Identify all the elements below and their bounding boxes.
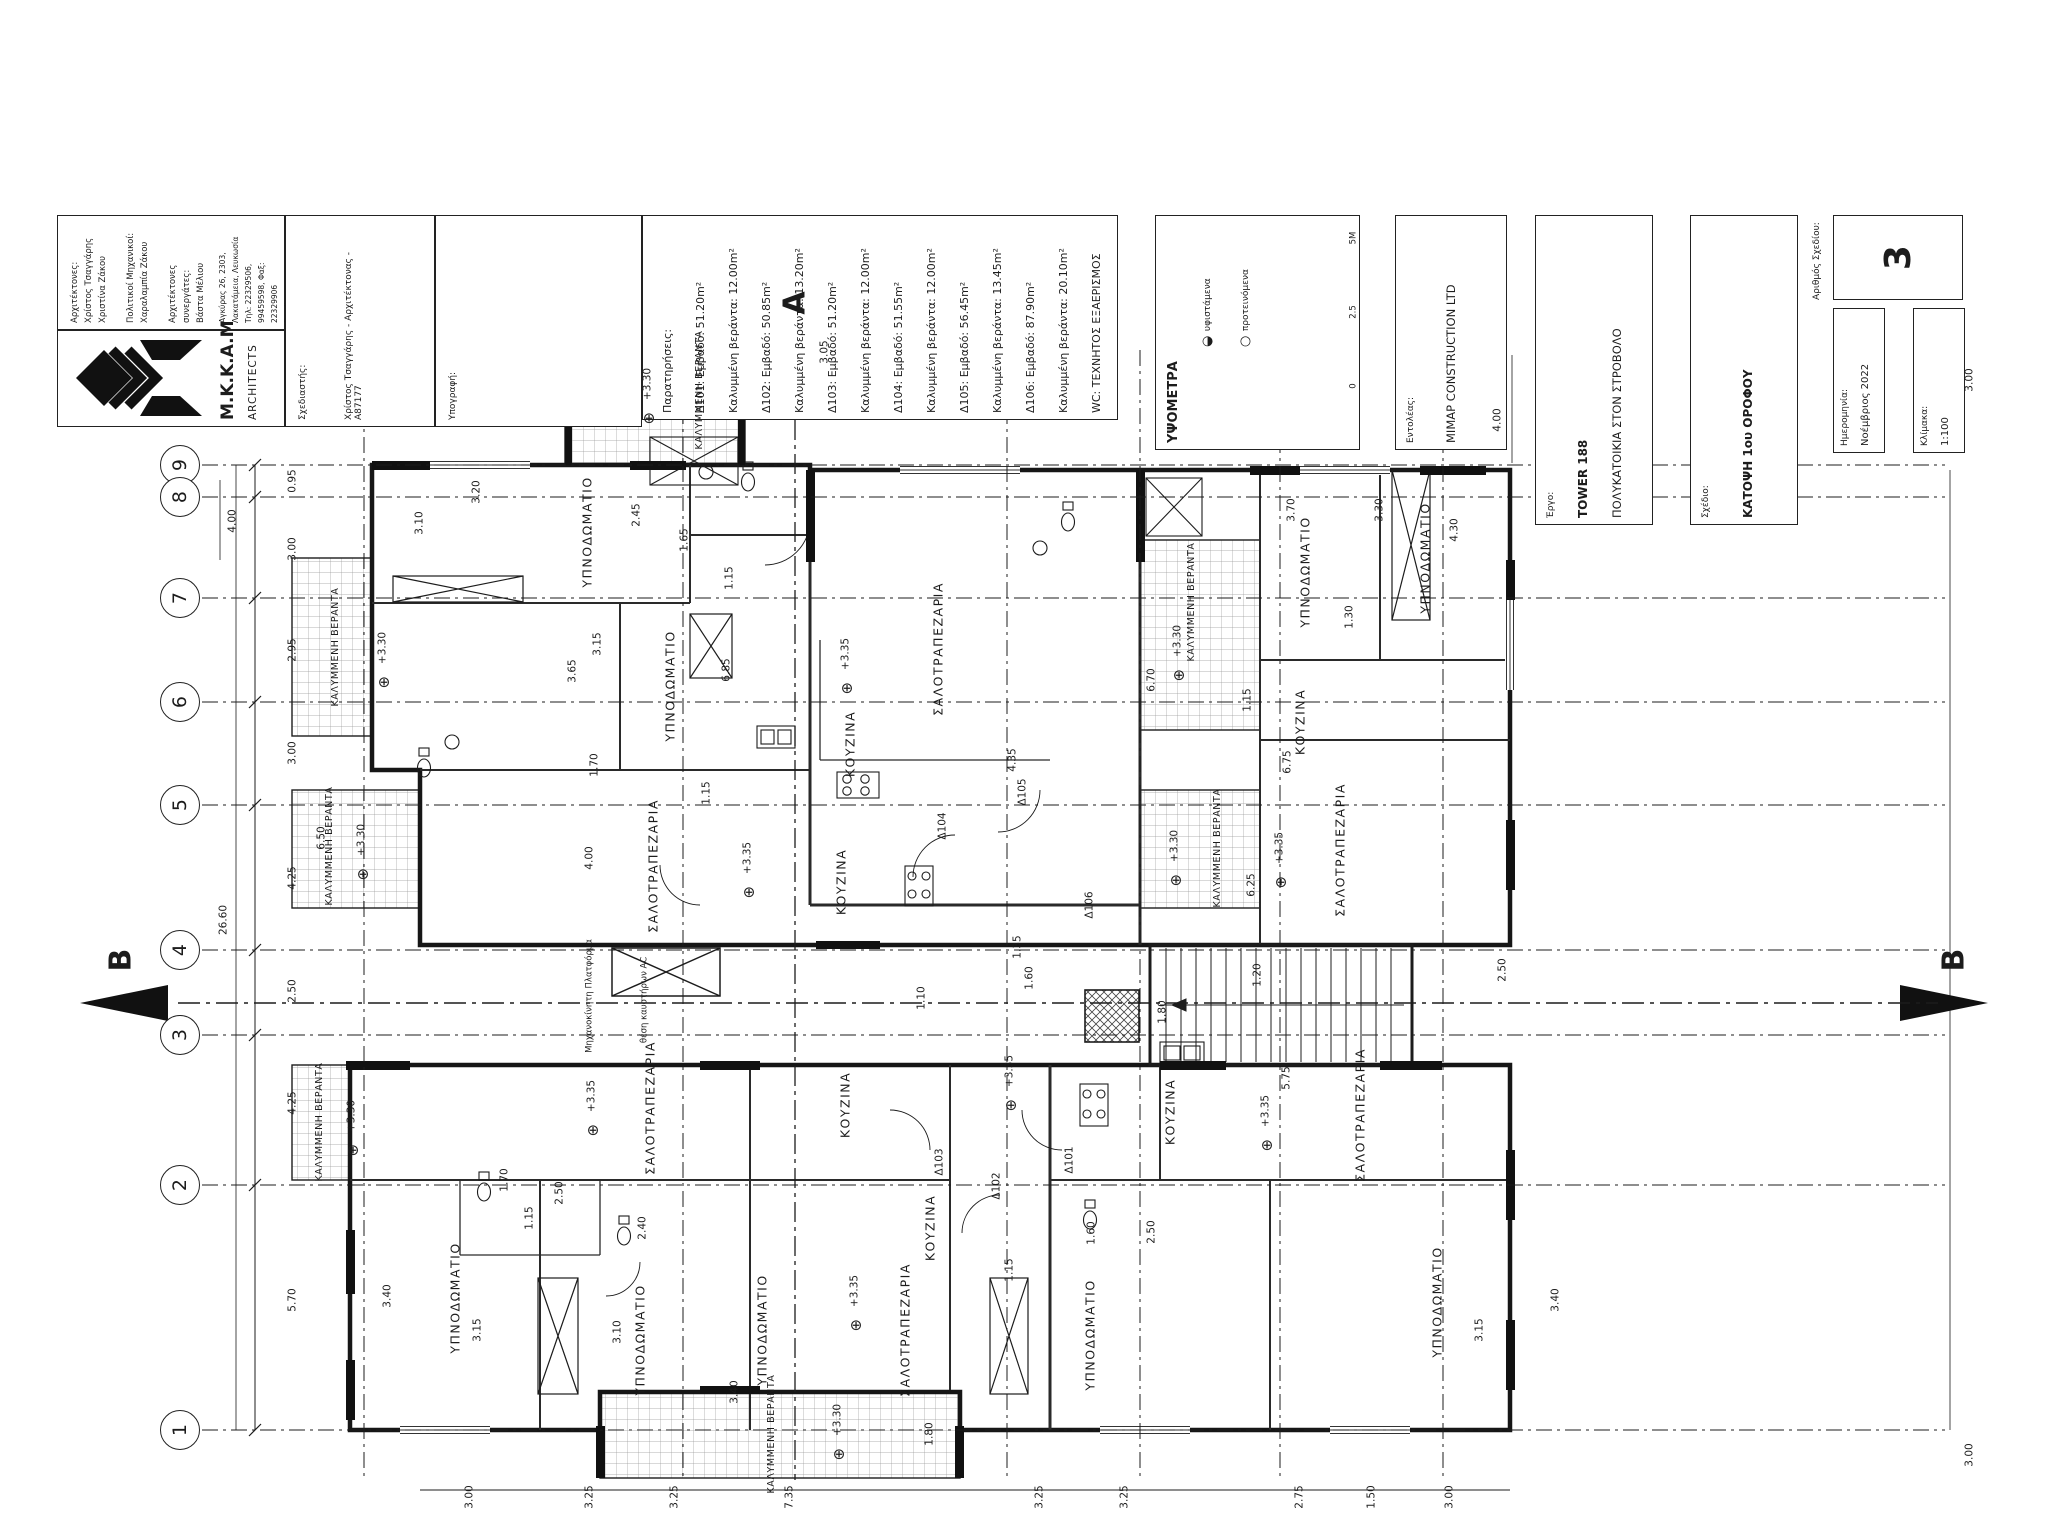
section-a-letter: A — [779, 291, 811, 314]
dimension-text: 1.80 — [924, 1422, 935, 1445]
level-marker-icon: ⊕ — [347, 1141, 360, 1159]
bottom-dimension: 2.75 — [1294, 1485, 1305, 1508]
level-text: +3.35 — [742, 842, 753, 874]
bottom-dimension: 3.25 — [1034, 1485, 1045, 1508]
left-dimension: 2.95 — [287, 638, 298, 661]
room-label: ΥΠΝΟΔΩΜΑΤΙΟ — [663, 630, 676, 741]
scalebar-label: 2.5 — [1350, 305, 1359, 319]
dimension-text: 1.60 — [1024, 966, 1035, 989]
plan-annotations: ΥΠΝΟΔΩΜΑΤΙΟΥΠΝΟΔΩΜΑΤΙΟΣΑΛΟΤΡΑΠΕΖΑΡΙΑΚΟΥΖ… — [0, 0, 2048, 1536]
section-b-letter: B — [105, 949, 137, 972]
room-label: ΚΟΥΖΙΝΑ — [1163, 1079, 1176, 1145]
dimension-text: 5.75 — [1281, 1066, 1292, 1089]
grid-bubble-1: 1 — [160, 1410, 200, 1450]
dimension-text: 4.35 — [1007, 748, 1018, 771]
dimension-text: 1.15 — [1004, 1258, 1015, 1281]
right-dimension: 3.00 — [1964, 368, 1975, 391]
apartment-tag: Δ101 — [1064, 1146, 1075, 1173]
level-text: +3.30 — [832, 1404, 843, 1436]
left-dimension: 4.25 — [287, 866, 298, 889]
left-dimension: 4.25 — [287, 1091, 298, 1114]
room-label: ΣΑΛΟΤΡΑΠΕΖΑΡΙΑ — [1353, 1048, 1366, 1182]
level-marker-icon: ⊕ — [378, 673, 391, 691]
floor-plan-sheet: Αρχιτέκτονες: Χρίστος Τσαγγάρης Χριστίνα… — [0, 0, 2048, 1536]
dimension-text: 3.15 — [1474, 1318, 1485, 1341]
dimension-text: 1.65 — [679, 528, 690, 551]
grid-bubble-7: 7 — [160, 578, 200, 618]
apartment-tag: Δ103 — [934, 1148, 945, 1175]
dimension-text: 2.45 — [631, 503, 642, 526]
room-label: ΚΟΥΖΙΝΑ — [843, 711, 856, 777]
room-label: ΣΑΛΟΤΡΑΠΕΖΑΡΙΑ — [1333, 783, 1346, 917]
dimension-text: 1.35 — [1012, 935, 1023, 958]
level-marker-icon: ⊕ — [850, 1316, 863, 1334]
bottom-dimension: 3.25 — [669, 1485, 680, 1508]
level-text: +3.30 — [1169, 830, 1180, 862]
room-label: ΥΠΝΟΔΩΜΑΤΙΟ — [1083, 1279, 1096, 1390]
bottom-dimension: 3.25 — [584, 1485, 595, 1508]
dimension-text: 6.75 — [1282, 750, 1293, 773]
dimension-text: 4.00 — [227, 509, 238, 532]
overall-dimension: 26.60 — [218, 905, 229, 935]
level-text: +3.35 — [1260, 1095, 1271, 1127]
level-marker-icon: ⊕ — [841, 679, 854, 697]
level-marker-icon: ⊕ — [743, 883, 756, 901]
dimension-text: 1.15 — [1242, 688, 1253, 711]
dimension-text: 6.25 — [1246, 873, 1257, 896]
room-label: ΚΟΥΖΙΝΑ — [834, 849, 847, 915]
dimension-text: 3.10 — [612, 1320, 623, 1343]
bottom-dimension: 7.35 — [784, 1485, 795, 1508]
dimension-text: 1.20 — [1252, 963, 1263, 986]
room-label: ΣΑΛΟΤΡΑΠΕΖΑΡΙΑ — [898, 1263, 911, 1397]
room-label: ΥΠΝΟΔΩΜΑΤΙΟ — [1430, 1246, 1443, 1357]
room-label: ΥΠΝΟΔΩΜΑΤΙΟ — [580, 476, 593, 587]
veranda-label: ΚΑΛΥΜΜΕΝΗ ΒΕΡΑΝΤΑ — [331, 587, 341, 706]
section-b-letter: B — [1938, 949, 1970, 972]
level-text: +3.30 — [642, 368, 653, 400]
dimension-text: 3.40 — [729, 1380, 740, 1403]
dimension-text: 1.70 — [589, 753, 600, 776]
grid-bubble-8: 8 — [160, 477, 200, 517]
room-label: ΣΑΛΟΤΡΑΠΕΖΑΡΙΑ — [643, 1041, 656, 1175]
room-label: ΚΟΥΖΙΝΑ — [838, 1072, 851, 1138]
level-text: +3.35 — [840, 638, 851, 670]
apartment-tag: Δ102 — [991, 1172, 1002, 1199]
level-text: +3.35 — [849, 1275, 860, 1307]
dimension-text: 6.70 — [1146, 668, 1157, 691]
grid-bubble-5: 5 — [160, 785, 200, 825]
bottom-dimension: 1.50 — [1366, 1485, 1377, 1508]
scalebar-label: 5M — [1350, 232, 1359, 245]
level-text: +3.30 — [377, 632, 388, 664]
apartment-tag: Δ106 — [1084, 891, 1095, 918]
room-label: ΣΑΛΟΤΡΑΠΕΖΑΡΙΑ — [646, 799, 659, 933]
veranda-label: ΚΑΛΥΜΜΕΝΗ ΒΕΡΑΝΤΑ — [767, 1374, 777, 1493]
dimension-text: 3.20 — [471, 480, 482, 503]
grid-bubble-3: 3 — [160, 1015, 200, 1055]
room-label: ΚΟΥΖΙΝΑ — [1293, 689, 1306, 755]
level-text: +3.30 — [1172, 625, 1183, 657]
veranda-label: ΚΑΛΥΜΜΕΝΗ ΒΕΡΑΝΤΑ — [1213, 788, 1223, 907]
right-dimension: 3.00 — [1964, 1443, 1975, 1466]
veranda-label: ΚΑΛΥΜΜΕΝΗ ΒΕΡΑΝΤΑ — [695, 330, 705, 449]
level-marker-icon: ⊕ — [1005, 1096, 1018, 1114]
dimension-text: 6.85 — [721, 658, 732, 681]
dimension-text: 4.00 — [584, 846, 595, 869]
scalebar-label: 0 — [1350, 383, 1359, 388]
level-marker-icon: ⊕ — [1261, 1136, 1274, 1154]
dimension-text: 3.40 — [382, 1284, 393, 1307]
left-dimension: 3.00 — [287, 741, 298, 764]
veranda-label: ΚΑΛΥΜΜΕΝΗ ΒΕΡΑΝΤΑ — [315, 1062, 325, 1181]
dimension-text: 1.60 — [1086, 1221, 1097, 1244]
dimension-text: 4.30 — [1449, 518, 1460, 541]
room-label: ΣΑΛΟΤΡΑΠΕΖΑΡΙΑ — [931, 582, 944, 716]
dimension-text: 6.50 — [316, 826, 327, 849]
bottom-dimension: 3.00 — [464, 1485, 475, 1508]
room-label: ΥΠΝΟΔΩΜΑΤΙΟ — [755, 1274, 768, 1385]
dimension-text: 3.40 — [1550, 1288, 1561, 1311]
level-marker-icon: ⊕ — [643, 409, 656, 427]
dimension-text: 3.65 — [567, 659, 578, 682]
room-label: ΥΠΝΟΔΩΜΑΤΙΟ — [1418, 502, 1431, 613]
grid-bubble-4: 4 — [160, 930, 200, 970]
grid-bubble-6: 6 — [160, 682, 200, 722]
level-text: +3.30 — [356, 824, 367, 856]
level-text: +3.35 — [1274, 832, 1285, 864]
bottom-dimension: 3.25 — [1119, 1485, 1130, 1508]
level-marker-icon: ⊕ — [357, 865, 370, 883]
level-marker-icon: ⊕ — [833, 1445, 846, 1463]
dimension-text: 1.80 — [1157, 1000, 1168, 1023]
dimension-text: 1.30 — [1344, 605, 1355, 628]
room-label: ΥΠΝΟΔΩΜΑΤΙΟ — [633, 1284, 646, 1395]
dimension-text: 3.70 — [1286, 498, 1297, 521]
level-marker-icon: ⊕ — [1275, 873, 1288, 891]
room-label: ΥΠΝΟΔΩΜΑΤΙΟ — [1298, 516, 1311, 627]
dimension-text: 2.50 — [1497, 958, 1508, 981]
left-dimension: 2.50 — [287, 979, 298, 1002]
dimension-text: 2.50 — [1146, 1220, 1157, 1243]
left-dimension: 0.95 — [287, 469, 298, 492]
dimension-text: 4.00 — [1492, 408, 1503, 431]
grid-bubble-2: 2 — [160, 1165, 200, 1205]
level-text: +3.30 — [346, 1100, 357, 1132]
level-marker-icon: ⊕ — [587, 1121, 600, 1139]
dimension-text: 3.30 — [1374, 498, 1385, 521]
note-text: θέση καυστήρων AC — [641, 957, 650, 1043]
apartment-tag: Δ105 — [1017, 778, 1028, 805]
room-label: ΚΟΥΖΙΝΑ — [923, 1195, 936, 1261]
level-text: +3.35 — [586, 1080, 597, 1112]
level-text: +3.35 — [1004, 1055, 1015, 1087]
apartment-tag: Δ104 — [937, 812, 948, 839]
left-dimension: 5.70 — [287, 1288, 298, 1311]
dimension-text: 1.10 — [916, 986, 927, 1009]
dimension-text: 3.10 — [414, 511, 425, 534]
dimension-text: 1.15 — [724, 566, 735, 589]
level-marker-icon: ⊕ — [1170, 871, 1183, 889]
level-marker-icon: ⊕ — [1173, 666, 1186, 684]
dimension-text: 3.15 — [592, 632, 603, 655]
note-text: Μηχανοκίνητη Πλατφόρμα — [586, 939, 595, 1053]
dimension-text: 1.15 — [524, 1206, 535, 1229]
bottom-dimension: 3.00 — [1444, 1485, 1455, 1508]
left-dimension: 3.00 — [287, 537, 298, 560]
dimension-text: 2.40 — [637, 1216, 648, 1239]
veranda-label: ΚΑΛΥΜΜΕΝΗ ΒΕΡΑΝΤΑ — [1187, 542, 1197, 661]
dimension-text: 3.05 — [819, 340, 830, 363]
dimension-text: 3.15 — [472, 1318, 483, 1341]
dimension-text: 1.15 — [701, 781, 712, 804]
dimension-text: 1.70 — [499, 1168, 510, 1191]
dimension-text: 2.50 — [554, 1181, 565, 1204]
room-label: ΥΠΝΟΔΩΜΑΤΙΟ — [448, 1242, 461, 1353]
